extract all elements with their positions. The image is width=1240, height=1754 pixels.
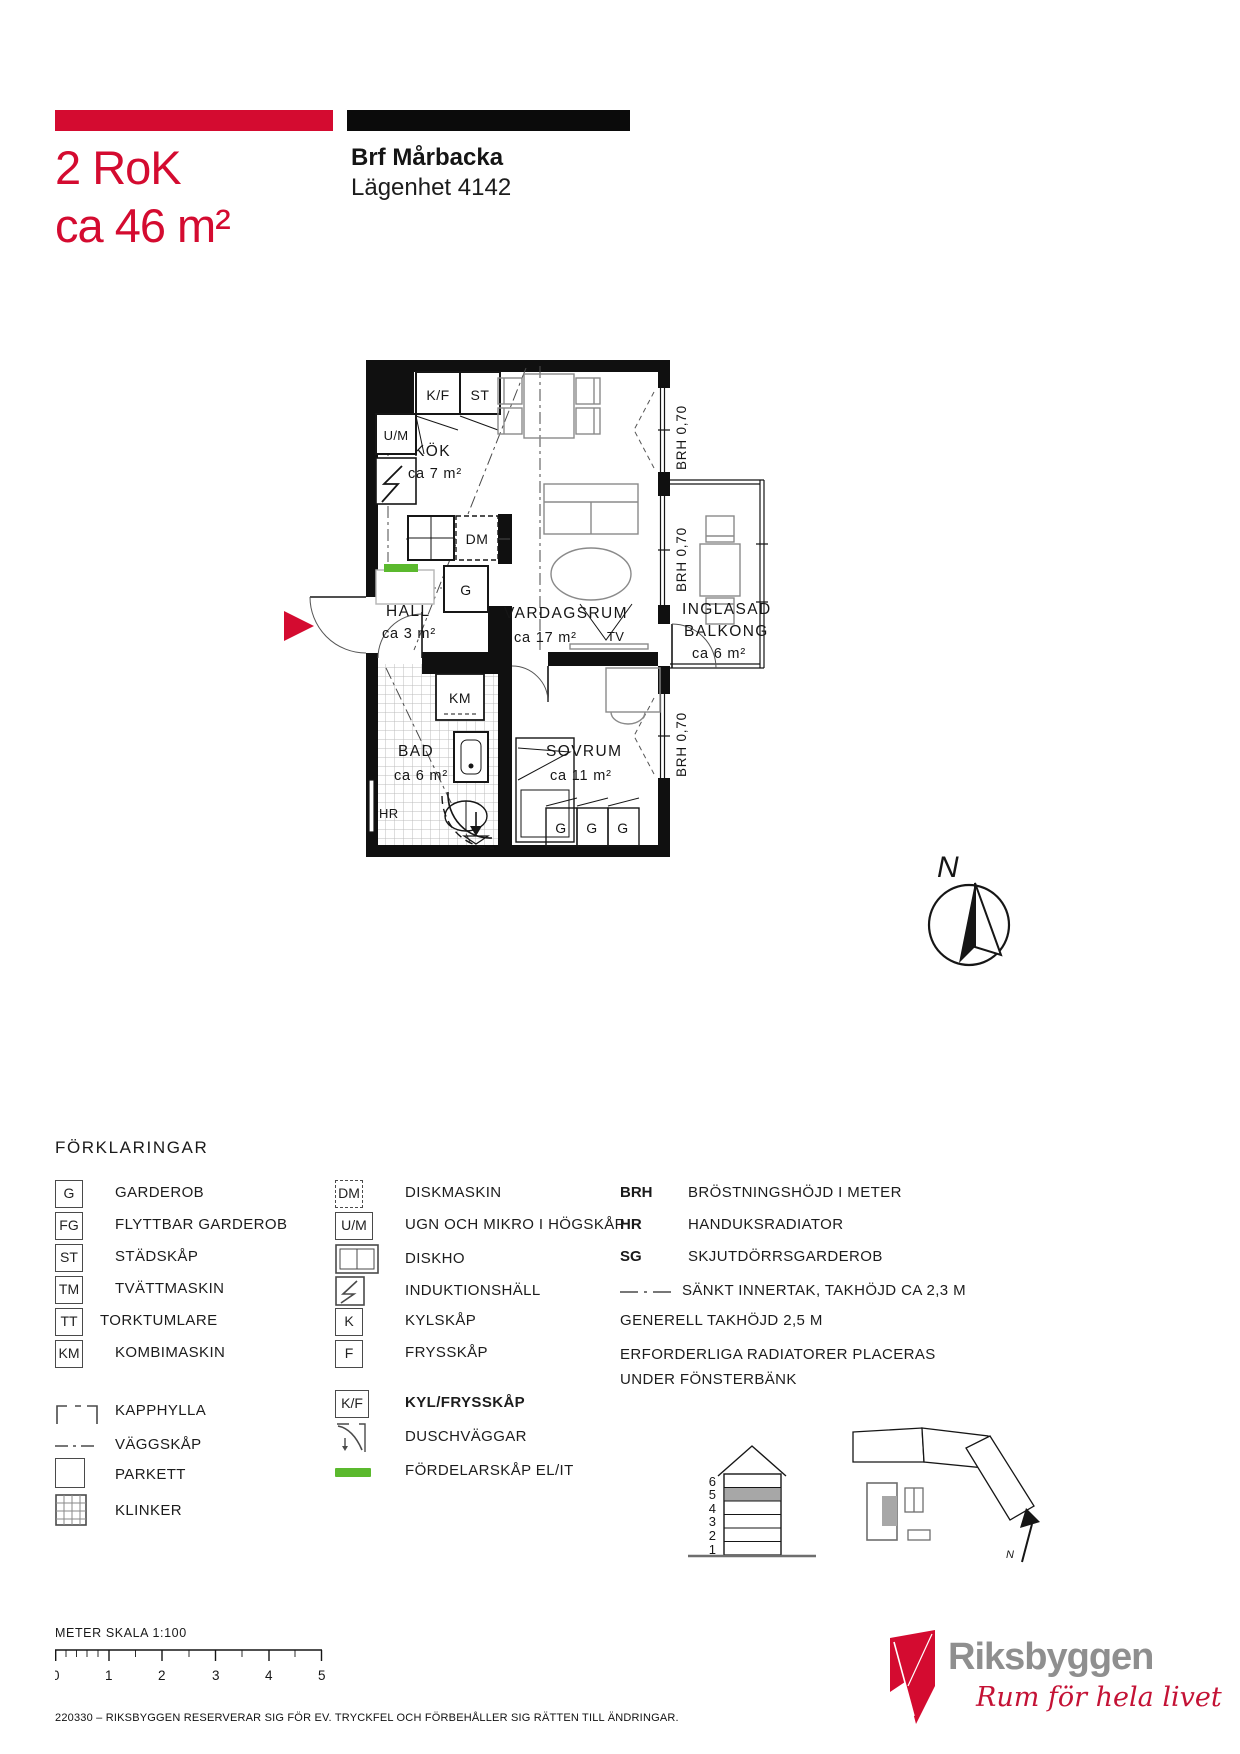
- um-label: U/M: [384, 428, 409, 443]
- legend-row: HRHANDUKSRADIATOR: [620, 1212, 670, 1240]
- km-label: KM: [449, 690, 471, 706]
- kapphylla-symbol: [55, 1398, 99, 1426]
- legend-row: SGSKJUTDÖRRSGARDEROB: [620, 1244, 670, 1272]
- legend-label: TORKTUMLARE: [100, 1312, 217, 1329]
- apartment-area-title: ca 46 m²: [55, 198, 230, 253]
- legend-label: KYL/FRYSSKÅP: [405, 1394, 525, 1411]
- legend-label: KLINKER: [115, 1502, 182, 1519]
- vardagsrum-label: VARDAGSRUM: [504, 605, 628, 622]
- tv-label: TV: [607, 629, 624, 644]
- highlighted-building: [882, 1496, 897, 1526]
- radiator-note-line1: ERFORDERLIGA RADIATORER PLACERAS: [620, 1346, 936, 1363]
- floor-2-label: 2: [709, 1528, 716, 1543]
- windows: [658, 388, 670, 778]
- scale-tick-3: 3: [212, 1668, 220, 1683]
- legend-label: FÖRDELARSKÅP EL/IT: [405, 1462, 574, 1479]
- duschvaggar-symbol: [335, 1422, 367, 1454]
- legend-row: KMKOMBIMASKIN: [55, 1340, 83, 1368]
- compass-needle-light: [975, 883, 1001, 955]
- legend-row: STSTÄDSKÅP: [55, 1244, 83, 1272]
- kombimaskin-symbol: KM: [55, 1340, 83, 1368]
- brh-label-1: BRH 0,70: [674, 405, 689, 470]
- legend-row: KAPPHYLLA: [55, 1398, 99, 1426]
- legend-column-1: GGARDEROB FGFLYTTBAR GARDEROB STSTÄDSKÅP…: [55, 1180, 345, 1540]
- scale-tick-4: 4: [265, 1668, 273, 1683]
- scale-minor-ticks: [66, 1650, 295, 1657]
- compass-needle-dark: [959, 883, 975, 963]
- hall-label: HALL: [386, 603, 430, 620]
- entrance-door: [310, 597, 366, 653]
- ugn-mikro-symbol: U/M: [335, 1212, 373, 1240]
- legend-row: INDUKTIONSHÄLL: [335, 1276, 365, 1304]
- legend-label: FRYSSKÅP: [405, 1344, 488, 1361]
- legend-row: VÄGGSKÅP: [55, 1432, 99, 1460]
- sankt-innertak-symbol: [620, 1286, 674, 1298]
- legend-row: FÖRDELARSKÅP EL/IT: [335, 1458, 371, 1486]
- scale-label: METER SKALA 1:100: [55, 1626, 187, 1640]
- legend-row: FFRYSSKÅP: [335, 1340, 363, 1368]
- legend-column-3: BRHBRÖSTNINGSHÖJD I METER HRHANDUKSRADIA…: [620, 1180, 980, 1400]
- legend-label: KYLSKÅP: [405, 1312, 476, 1329]
- ceiling-height-note: GENERELL TAKHÖJD 2,5 M: [620, 1312, 823, 1329]
- tvattmaskin-symbol: TM: [55, 1276, 83, 1304]
- wardrobe-g3-label: G: [617, 820, 628, 836]
- kyl-frysskap-symbol: K/F: [335, 1390, 369, 1418]
- legend-label: GARDEROB: [115, 1184, 204, 1201]
- legend-label: SKJUTDÖRRSGARDEROB: [688, 1248, 883, 1265]
- legend-label: INDUKTIONSHÄLL: [405, 1282, 541, 1299]
- wardrobe-g1-label: G: [555, 820, 566, 836]
- legend-label: HANDUKSRADIATOR: [688, 1216, 843, 1233]
- vaggskap-symbol: [55, 1432, 99, 1460]
- balkong-area: ca 6 m²: [692, 646, 746, 662]
- building-locator: 6 5 4 3 2 1 N: [620, 1420, 1060, 1590]
- site-plan: [853, 1428, 1034, 1540]
- diskho-symbol: [335, 1244, 379, 1274]
- legend-row: KKYLSKÅP: [335, 1308, 363, 1336]
- scale-bar: 0 1 2 3 4 5: [55, 1648, 345, 1693]
- legend-label: TVÄTTMASKIN: [115, 1280, 224, 1297]
- black-accent-bar: [347, 110, 630, 131]
- legend-label: VÄGGSKÅP: [115, 1436, 202, 1453]
- klinker-symbol: [55, 1494, 87, 1526]
- fordelarskap-symbol: [335, 1468, 371, 1477]
- floor-5-label: 5: [709, 1487, 716, 1502]
- st-label: ST: [471, 387, 490, 403]
- legend-row: TTTORKTUMLARE: [55, 1308, 83, 1336]
- wardrobe-g2-label: G: [586, 820, 597, 836]
- legend-title: FÖRKLARINGAR: [55, 1138, 208, 1158]
- legend-label: DISKMASKIN: [405, 1184, 502, 1201]
- scale-tick-2: 2: [158, 1668, 166, 1683]
- legend-row: FGFLYTTBAR GARDEROB: [55, 1212, 83, 1240]
- scale-tick-1: 1: [105, 1668, 113, 1683]
- scale-tick-5: 5: [318, 1668, 326, 1683]
- legend-label: DISKHO: [405, 1250, 465, 1267]
- brh-abbr: BRH: [620, 1180, 670, 1201]
- frysskap-symbol: F: [335, 1340, 363, 1368]
- garderob-symbol: G: [55, 1180, 83, 1208]
- legend-label: STÄDSKÅP: [115, 1248, 198, 1265]
- floor-3-label: 3: [709, 1514, 716, 1529]
- legend-row: DISKHO: [335, 1244, 379, 1272]
- legend-row: BRHBRÖSTNINGSHÖJD I METER: [620, 1180, 670, 1208]
- legend-label: BRÖSTNINGSHÖJD I METER: [688, 1184, 902, 1201]
- legend-row: DMDISKMASKIN: [335, 1180, 363, 1208]
- balkong-label-2: BALKONG: [684, 623, 769, 640]
- legend-row: K/FKYL/FRYSSKÅP: [335, 1390, 369, 1418]
- compass-north-label: N: [937, 851, 959, 884]
- diskmaskin-symbol: DM: [335, 1180, 363, 1208]
- bedroom-door: [512, 666, 548, 702]
- site-north-label: N: [1006, 1549, 1014, 1561]
- radiator-note-line2: UNDER FÖNSTERBÄNK: [620, 1371, 797, 1388]
- flyttbar-garderob-symbol: FG: [55, 1212, 83, 1240]
- stadskap-symbol: ST: [55, 1244, 83, 1272]
- kf-label: K/F: [426, 387, 449, 403]
- kok-area: ca 7 m²: [408, 466, 462, 482]
- dm-label: DM: [466, 531, 489, 547]
- entrance-arrow: [284, 611, 314, 641]
- floorplan-page: 2 RoK ca 46 m² Brf Mårbacka Lägenhet 414…: [0, 0, 1240, 1754]
- legend-row: TMTVÄTTMASKIN: [55, 1276, 83, 1304]
- vardagsrum-area: ca 17 m²: [514, 630, 577, 646]
- building-elevation: 6 5 4 3 2 1: [688, 1446, 816, 1557]
- legend-label: SÄNKT INNERTAK, TAKHÖJD CA 2,3 M: [682, 1282, 966, 1299]
- legend-row: DUSCHVÄGGAR: [335, 1422, 367, 1450]
- floor-plan: K/F ST U/M DM G KM HR TV G G G KÖK ca 7 …: [268, 352, 778, 867]
- legend-row: U/MUGN OCH MIKRO I HÖGSKÅP: [335, 1212, 373, 1240]
- legend-label: KOMBIMASKIN: [115, 1344, 225, 1361]
- legend-column-2: DMDISKMASKIN U/MUGN OCH MIKRO I HÖGSKÅP …: [335, 1180, 635, 1510]
- brh-label-2: BRH 0,70: [674, 527, 689, 592]
- disclaimer-text: 220330 – RIKSBYGGEN RESERVERAR SIG FÖR E…: [55, 1712, 679, 1724]
- induktionshall-symbol: [335, 1276, 365, 1306]
- project-name: Brf Mårbacka: [351, 144, 503, 172]
- riksbyggen-tagline: Rum för hela livet: [976, 1682, 1222, 1713]
- floor-1-label: 1: [709, 1542, 716, 1557]
- riksbyggen-flag-icon: [888, 1630, 940, 1730]
- brh-label-3: BRH 0,70: [674, 712, 689, 777]
- legend-label: PARKETT: [115, 1466, 186, 1483]
- kok-label: KÖK: [414, 442, 451, 460]
- riksbyggen-logo-text: Riksbyggen: [948, 1636, 1153, 1679]
- apartment-number: Lägenhet 4142: [351, 174, 511, 202]
- parkett-symbol: [55, 1458, 85, 1488]
- g-hall-label: G: [460, 582, 471, 598]
- legend-label: UGN OCH MIKRO I HÖGSKÅP: [405, 1216, 625, 1233]
- legend-row: PARKETT: [55, 1458, 85, 1486]
- legend-row: GGARDEROB: [55, 1180, 83, 1208]
- highlighted-floor: [724, 1488, 781, 1502]
- hall-area: ca 3 m²: [382, 626, 436, 642]
- distribution-cabinet-mark: [384, 564, 418, 572]
- compass: N: [915, 835, 1030, 975]
- torktumlare-symbol: TT: [55, 1308, 83, 1336]
- legend-label: DUSCHVÄGGAR: [405, 1428, 527, 1445]
- bad-area: ca 6 m²: [394, 768, 448, 784]
- legend-row: KLINKER: [55, 1494, 87, 1522]
- balkong-label-1: INGLASAD: [682, 601, 772, 618]
- bad-label: BAD: [398, 743, 434, 760]
- sovrum-label: SOVRUM: [546, 743, 622, 760]
- apartment-type-title: 2 RoK: [55, 140, 181, 195]
- sovrum-area: ca 11 m²: [550, 768, 612, 784]
- legend-label: KAPPHYLLA: [115, 1402, 206, 1419]
- sg-abbr: SG: [620, 1244, 670, 1265]
- hr-abbr: HR: [620, 1212, 670, 1233]
- legend-label: FLYTTBAR GARDEROB: [115, 1216, 287, 1233]
- legend-row: SÄNKT INNERTAK, TAKHÖJD CA 2,3 M: [620, 1278, 674, 1306]
- red-accent-bar: [55, 110, 333, 131]
- scale-tick-0: 0: [55, 1668, 60, 1683]
- kylskap-symbol: K: [335, 1308, 363, 1336]
- hr-label: HR: [379, 806, 398, 821]
